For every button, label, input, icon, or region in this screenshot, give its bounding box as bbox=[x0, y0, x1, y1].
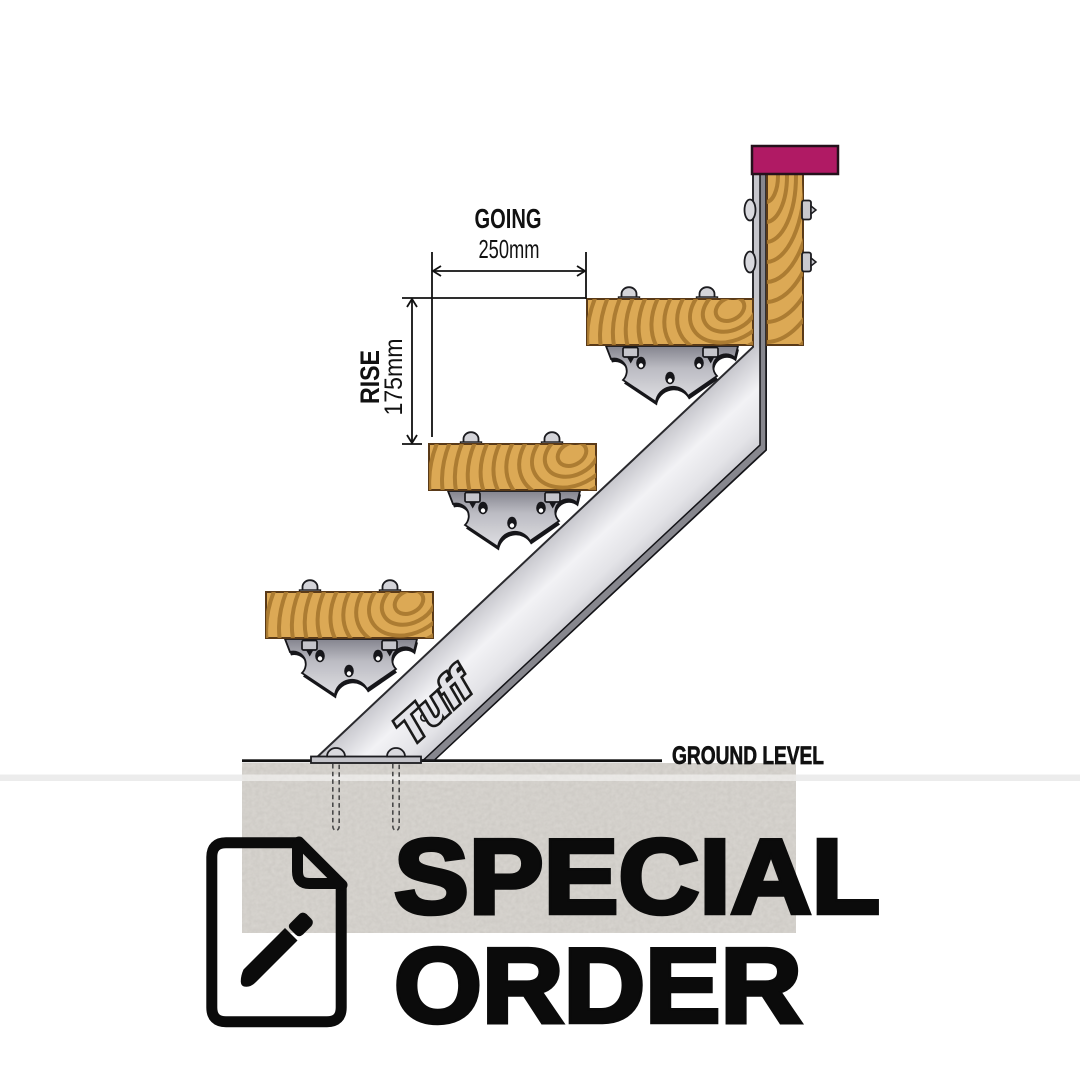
svg-text:GROUND LEVEL: GROUND LEVEL bbox=[672, 742, 824, 770]
svg-text:GOING: GOING bbox=[475, 203, 542, 234]
svg-text:175mm: 175mm bbox=[380, 339, 408, 416]
svg-text:ORDER: ORDER bbox=[394, 927, 802, 1045]
svg-text:SPECIAL: SPECIAL bbox=[394, 818, 880, 936]
svg-text:250mm: 250mm bbox=[479, 234, 540, 264]
